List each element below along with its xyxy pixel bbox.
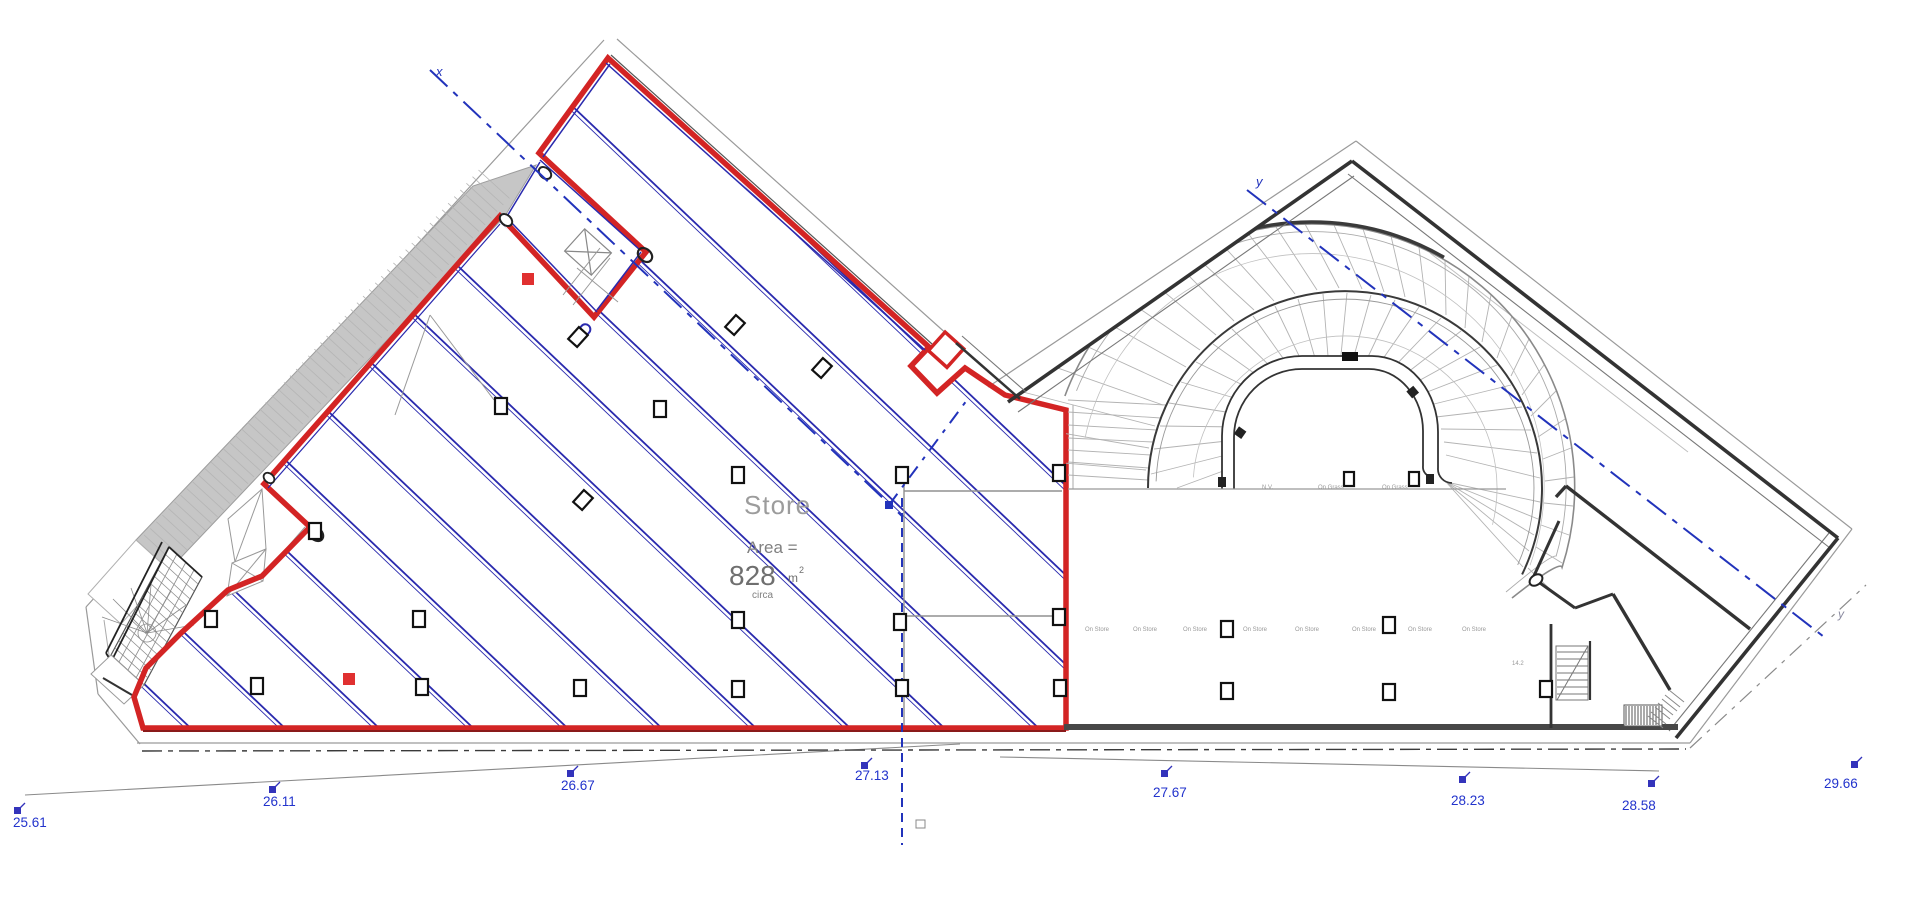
svg-text:28.23: 28.23 [1451, 793, 1485, 808]
svg-text:25.61: 25.61 [13, 815, 47, 830]
svg-text:On Store: On Store [1243, 627, 1268, 633]
svg-text:y: y [1255, 174, 1264, 189]
svg-text:On Store: On Store [1133, 627, 1158, 633]
svg-text:On Grass: On Grass [1318, 485, 1344, 491]
svg-text:26.67: 26.67 [561, 778, 595, 793]
svg-text:828: 828 [729, 560, 776, 591]
svg-text:26.11: 26.11 [263, 794, 296, 809]
svg-text:29.66: 29.66 [1824, 776, 1858, 791]
svg-text:x: x [435, 64, 443, 79]
svg-text:14.2: 14.2 [1512, 661, 1524, 667]
svg-text:N.V.: N.V. [1262, 485, 1273, 491]
svg-text:2: 2 [799, 565, 804, 575]
svg-text:On Store: On Store [1352, 627, 1377, 633]
svg-text:On Store: On Store [1462, 627, 1487, 633]
svg-text:On Grass: On Grass [1382, 485, 1408, 491]
svg-text:27.13: 27.13 [855, 768, 889, 783]
svg-text:27.67: 27.67 [1153, 785, 1187, 800]
svg-text:Area =: Area = [747, 538, 798, 557]
svg-text:On Store: On Store [1295, 627, 1320, 633]
svg-text:28.58: 28.58 [1622, 798, 1656, 813]
svg-text:On Store: On Store [1085, 627, 1110, 633]
svg-text:On Store: On Store [1408, 627, 1433, 633]
svg-text:circa: circa [752, 590, 774, 601]
svg-text:Store: Store [744, 490, 811, 520]
svg-text:m: m [788, 571, 798, 585]
svg-text:On Store: On Store [1183, 627, 1208, 633]
svg-text:y: y [1837, 607, 1845, 621]
